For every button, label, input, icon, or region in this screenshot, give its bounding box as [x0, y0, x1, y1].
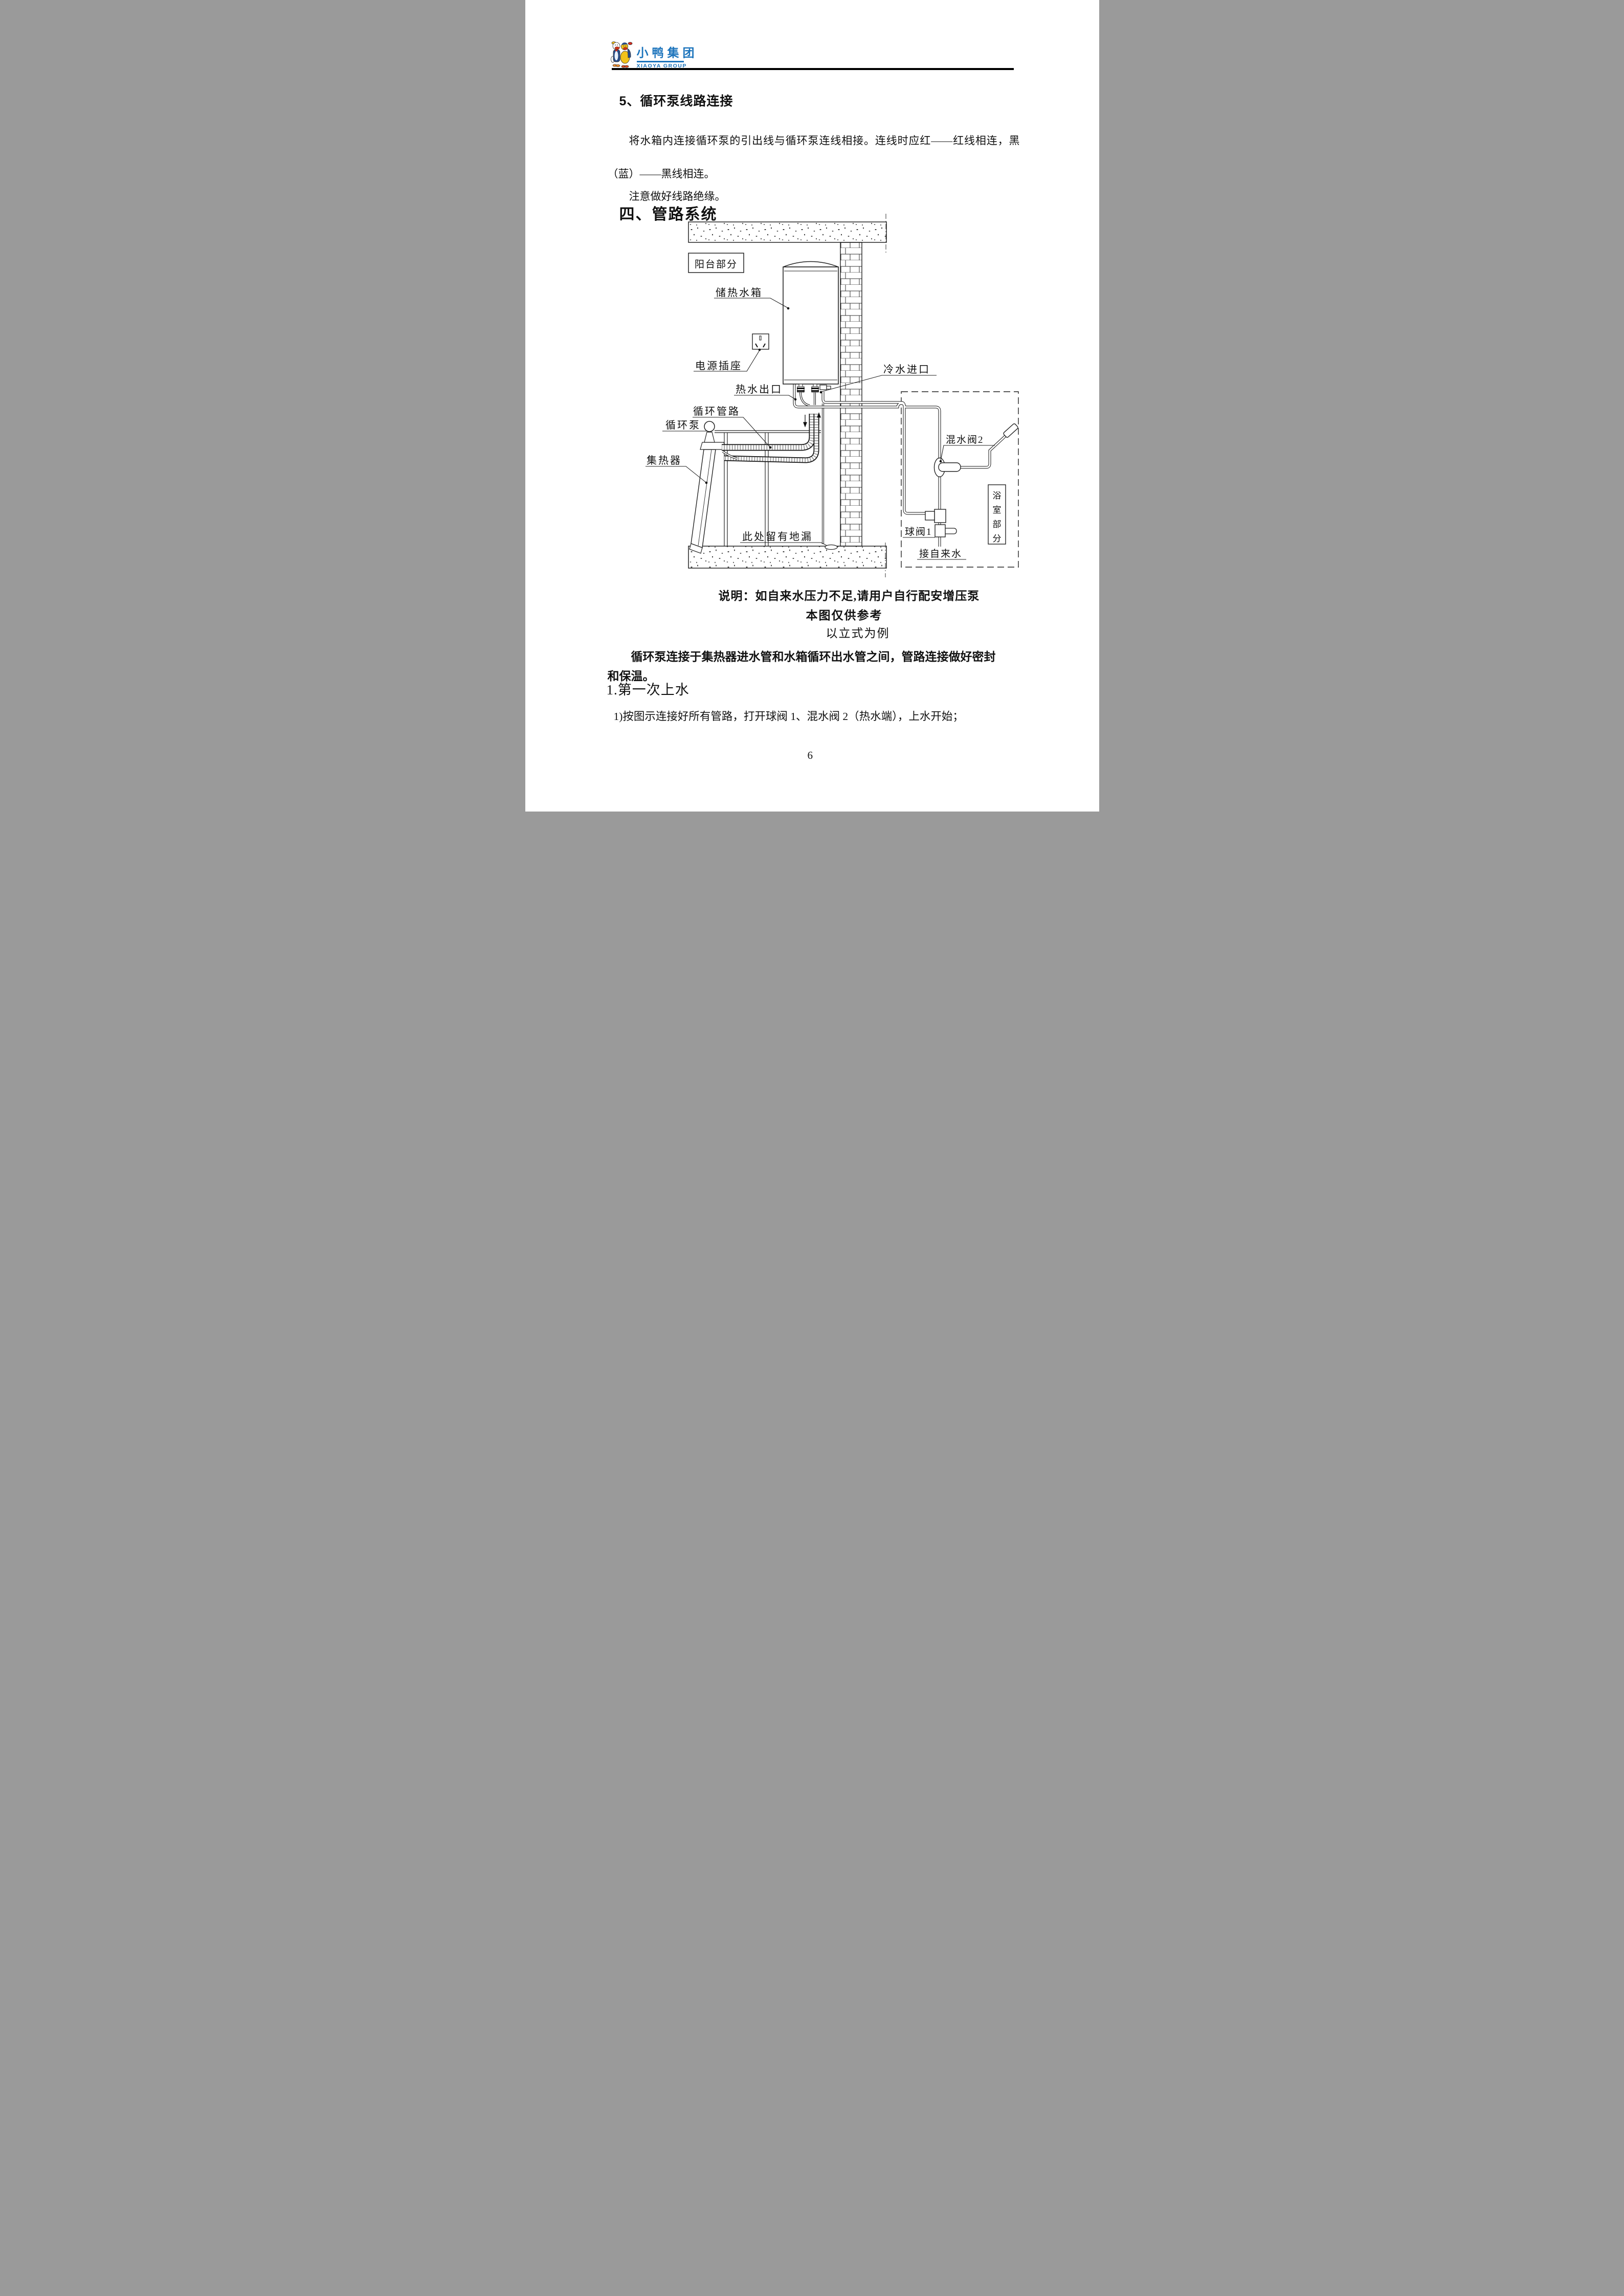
logo-cn-text: 小鸭集团	[637, 47, 698, 59]
step1-text: 1)按图示连接好所有管路，打开球阀 1、混水阀 2（热水端），上水开始；	[614, 708, 1023, 724]
insulated-circulation-pipes	[722, 414, 816, 460]
bathroom-label-char: 分	[992, 534, 1001, 544]
bathroom-label-char: 室	[992, 505, 1001, 515]
tap-water-label: 接自来水	[919, 548, 962, 559]
cold-water-pipe	[823, 392, 926, 513]
collector-label: 集热器	[647, 455, 682, 466]
logo-divider	[637, 61, 684, 62]
shower-head	[1003, 423, 1018, 438]
subsection-first-fill: 1.第一次上水	[607, 679, 689, 699]
circ-pump-label: 循环泵	[665, 419, 701, 431]
circ-pipe-label: 循环管路	[693, 406, 740, 417]
ball-valve-1	[935, 525, 956, 537]
bathroom-label-char: 浴	[992, 491, 1001, 501]
balcony-label: 阳台部分	[694, 259, 737, 270]
diagram-caption-note: 说明：如自来水压力不足,请用户自行配安增压泵	[719, 586, 980, 603]
circulation-pump-symbol	[704, 421, 715, 432]
bathroom-label-char: 部	[992, 520, 1001, 529]
tank-fittings	[797, 384, 831, 392]
solar-collector	[689, 432, 726, 553]
cold-in-label: 冷水进口	[883, 364, 930, 375]
section5-title: 5、循环泵线路连接	[619, 91, 733, 109]
floor-drain-label: 此处留有地漏	[742, 531, 813, 543]
ball-valve-label: 球阀1	[905, 526, 932, 537]
ceiling-slab	[688, 222, 886, 242]
mixing-valve-2	[934, 458, 961, 477]
page-number: 6	[808, 749, 813, 762]
diagram-caption-example: 以立式为例	[826, 623, 890, 641]
power-socket	[752, 334, 769, 349]
hot-out-label: 热水出口	[736, 384, 783, 395]
socket-label: 电源插座	[695, 360, 742, 372]
tee-fitting	[925, 509, 946, 523]
diagram-caption-ref: 本图仅供参考	[806, 605, 883, 623]
storage-tank	[783, 262, 838, 385]
header-rule	[612, 68, 1014, 70]
floor-slab	[688, 546, 886, 568]
company-logo: 小鸭集团 XIAOYA GROUP	[610, 41, 698, 69]
brick-wall	[840, 242, 862, 546]
manual-page: 小鸭集团 XIAOYA GROUP 5、循环泵线路连接 将水箱内连接循环泵的引出…	[525, 0, 1099, 812]
piping-system-diagram: 阳台部分 浴 室 部 分 储热水箱 电源插座 热水出口 冷水进口 循环管路 循环…	[634, 211, 1024, 582]
section5-paragraph: 将水箱内连接循环泵的引出线与循环泵连线相接。连线时应红——红线相连，黑（蓝）——…	[608, 124, 1020, 191]
tank-label: 储热水箱	[716, 287, 763, 299]
duck-mascots-icon	[610, 41, 634, 69]
mix-valve-label: 混水阀2	[946, 434, 984, 445]
